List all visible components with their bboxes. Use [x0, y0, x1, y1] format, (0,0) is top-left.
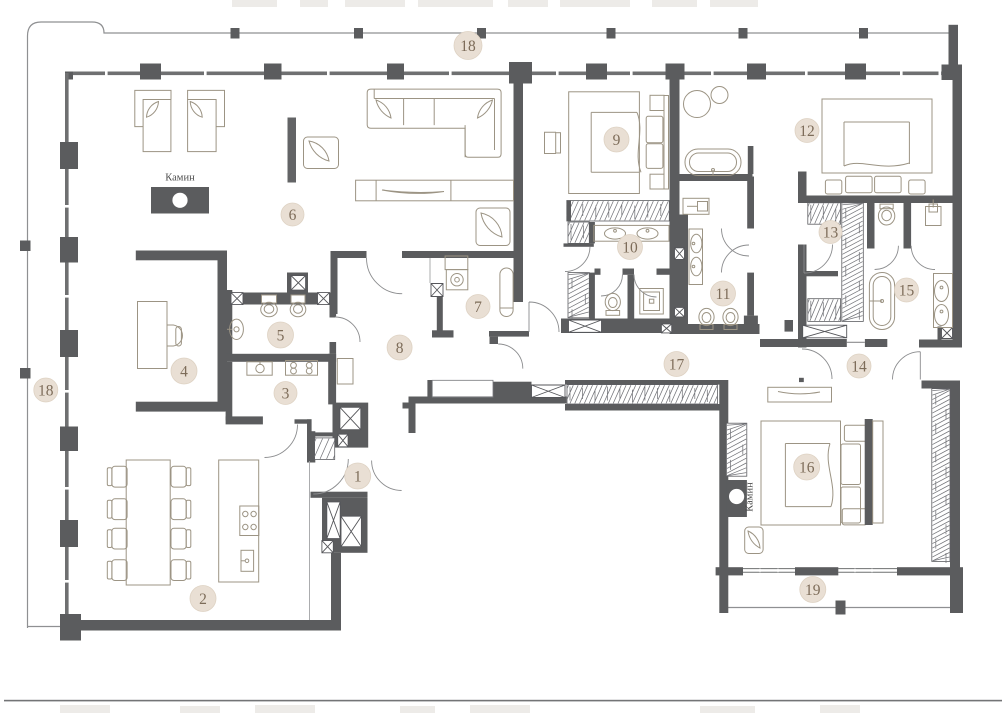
svg-text:7: 7: [474, 299, 482, 316]
svg-text:5: 5: [277, 328, 285, 345]
svg-text:3: 3: [282, 386, 290, 403]
svg-text:18: 18: [38, 383, 54, 400]
svg-text:15: 15: [899, 283, 915, 300]
svg-text:2: 2: [199, 591, 207, 608]
svg-text:12: 12: [799, 123, 815, 140]
svg-text:1: 1: [354, 469, 362, 486]
svg-text:4: 4: [180, 364, 188, 381]
svg-text:11: 11: [716, 286, 731, 303]
svg-text:16: 16: [799, 460, 815, 477]
svg-text:13: 13: [823, 225, 839, 242]
svg-text:6: 6: [289, 207, 297, 224]
svg-text:8: 8: [396, 340, 404, 357]
svg-text:Камин: Камин: [165, 173, 195, 184]
svg-text:18: 18: [460, 38, 476, 55]
svg-text:9: 9: [613, 132, 621, 149]
svg-text:19: 19: [805, 582, 821, 599]
svg-text:17: 17: [669, 357, 685, 374]
svg-text:10: 10: [622, 240, 638, 257]
svg-text:14: 14: [851, 359, 867, 376]
svg-text:Камин: Камин: [745, 482, 756, 512]
